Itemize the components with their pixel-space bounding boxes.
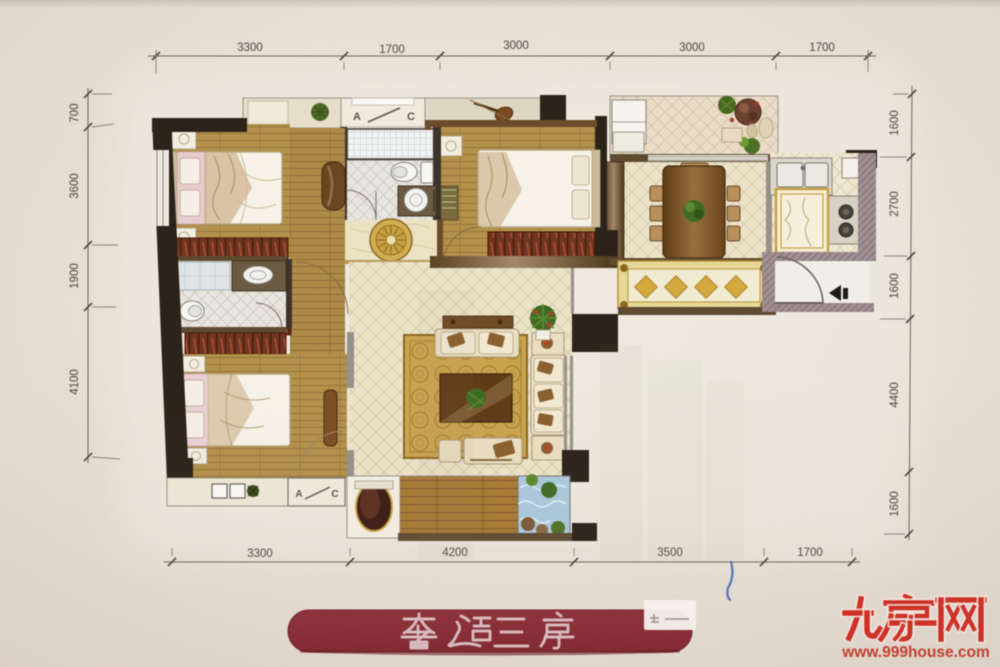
svg-text:4400: 4400 [889,382,901,408]
svg-text:3300: 3300 [237,42,263,54]
svg-text:1700: 1700 [809,42,835,54]
svg-text:A: A [353,111,361,123]
svg-text:A: A [295,489,302,500]
svg-text:C: C [407,111,415,123]
svg-text:1600: 1600 [889,491,901,517]
svg-text:700: 700 [69,103,81,122]
svg-text:3600: 3600 [69,173,81,199]
svg-text:1900: 1900 [69,263,81,289]
svg-text:4100: 4100 [69,369,81,395]
svg-text:2700: 2700 [889,191,901,217]
svg-text:3000: 3000 [503,40,529,52]
svg-text:1700: 1700 [797,547,823,559]
svg-text:1600: 1600 [889,273,901,299]
svg-text:1700: 1700 [379,44,405,56]
svg-text:3300: 3300 [247,548,273,560]
svg-text:C: C [331,489,338,500]
svg-text:www.999house.com: www.999house.com [841,644,990,661]
svg-text:1600: 1600 [889,110,901,136]
svg-text:3000: 3000 [679,42,705,54]
